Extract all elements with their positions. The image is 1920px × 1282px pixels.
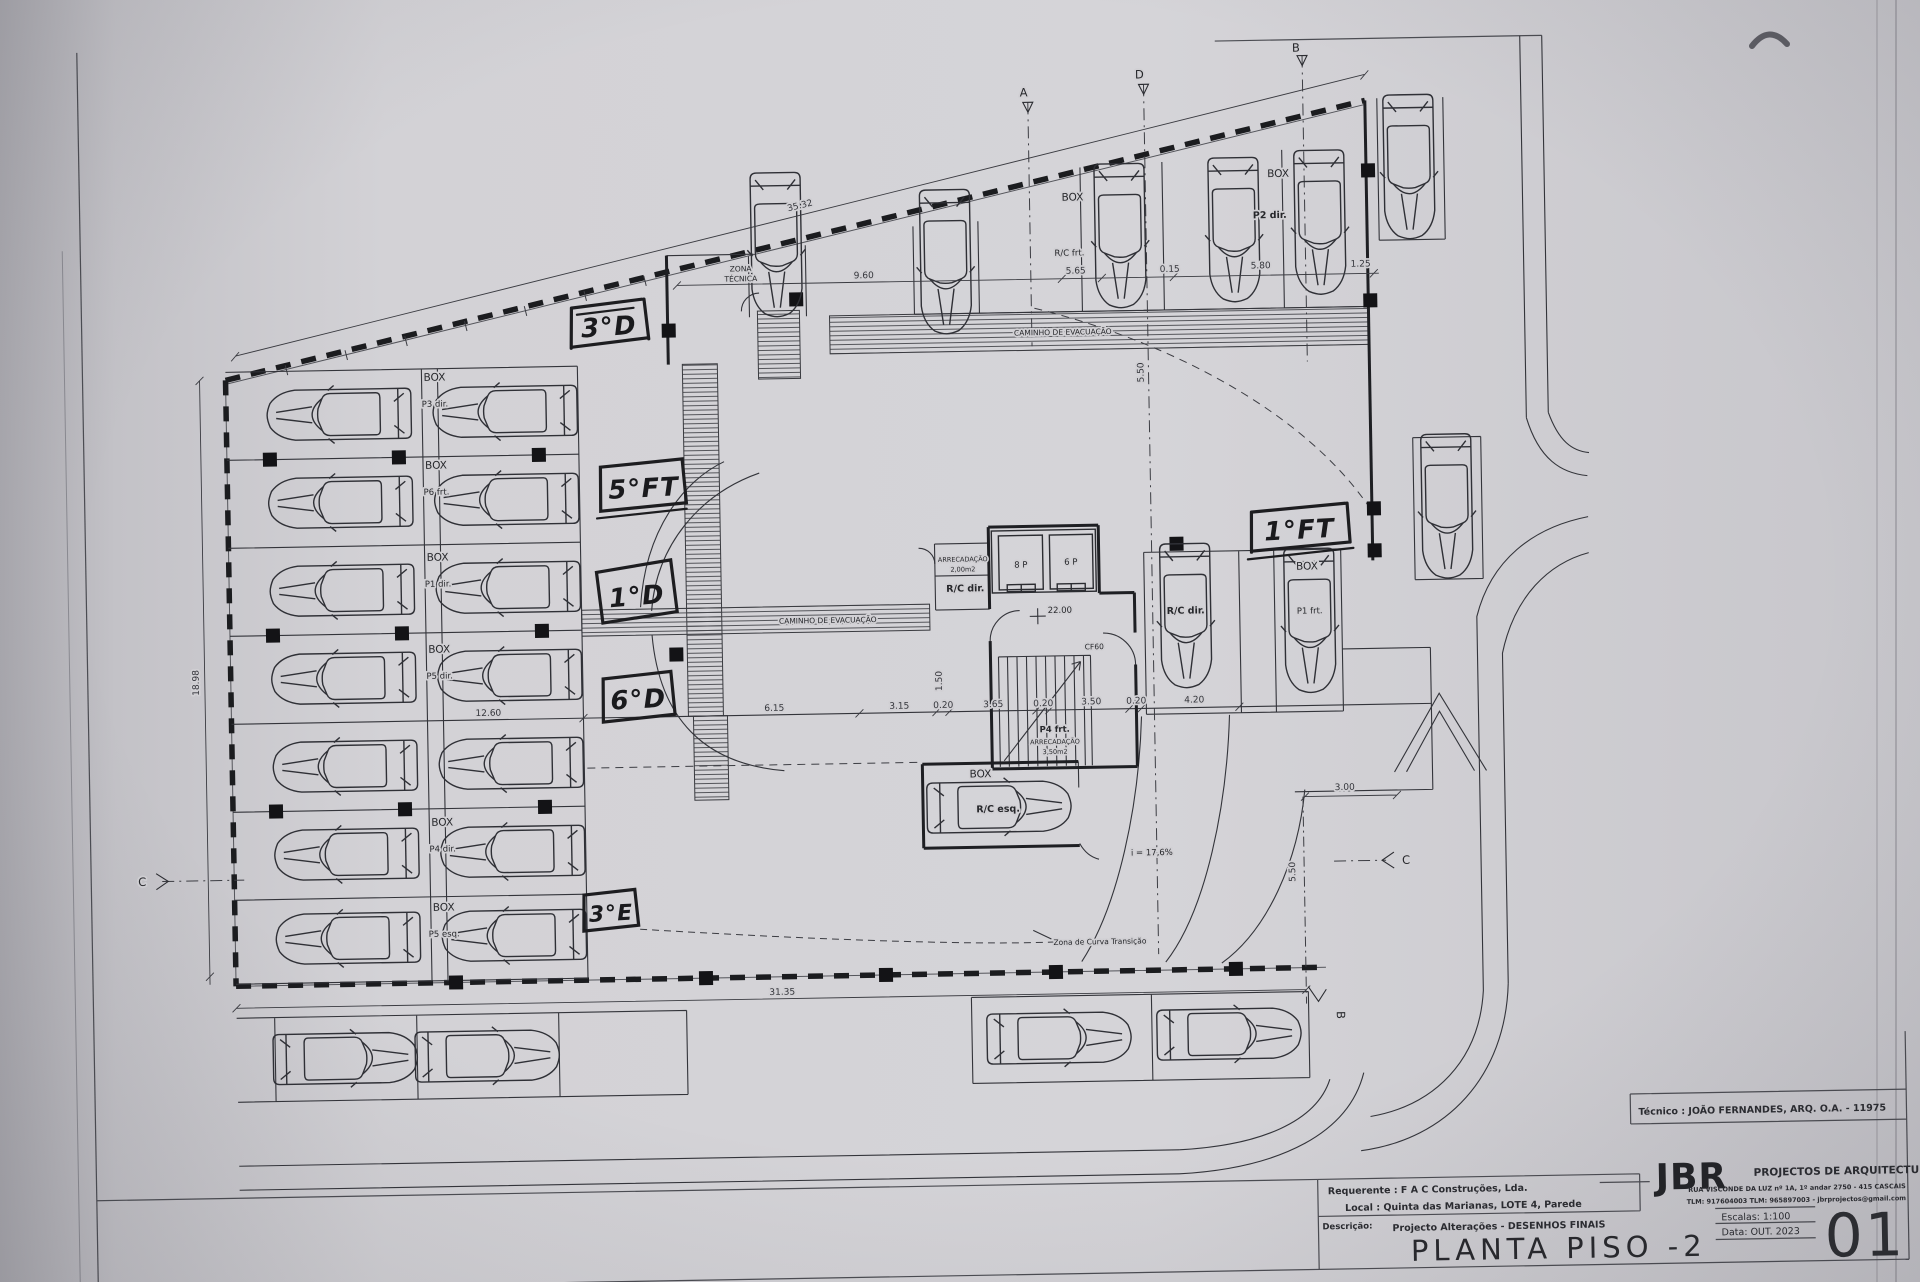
photo-vignette bbox=[0, 0, 1920, 1282]
scanned-floor-plan-photo: ZONA TÉCNICA CAMINHO DE EVACUAÇÃO CAMINH… bbox=[0, 0, 1920, 1282]
